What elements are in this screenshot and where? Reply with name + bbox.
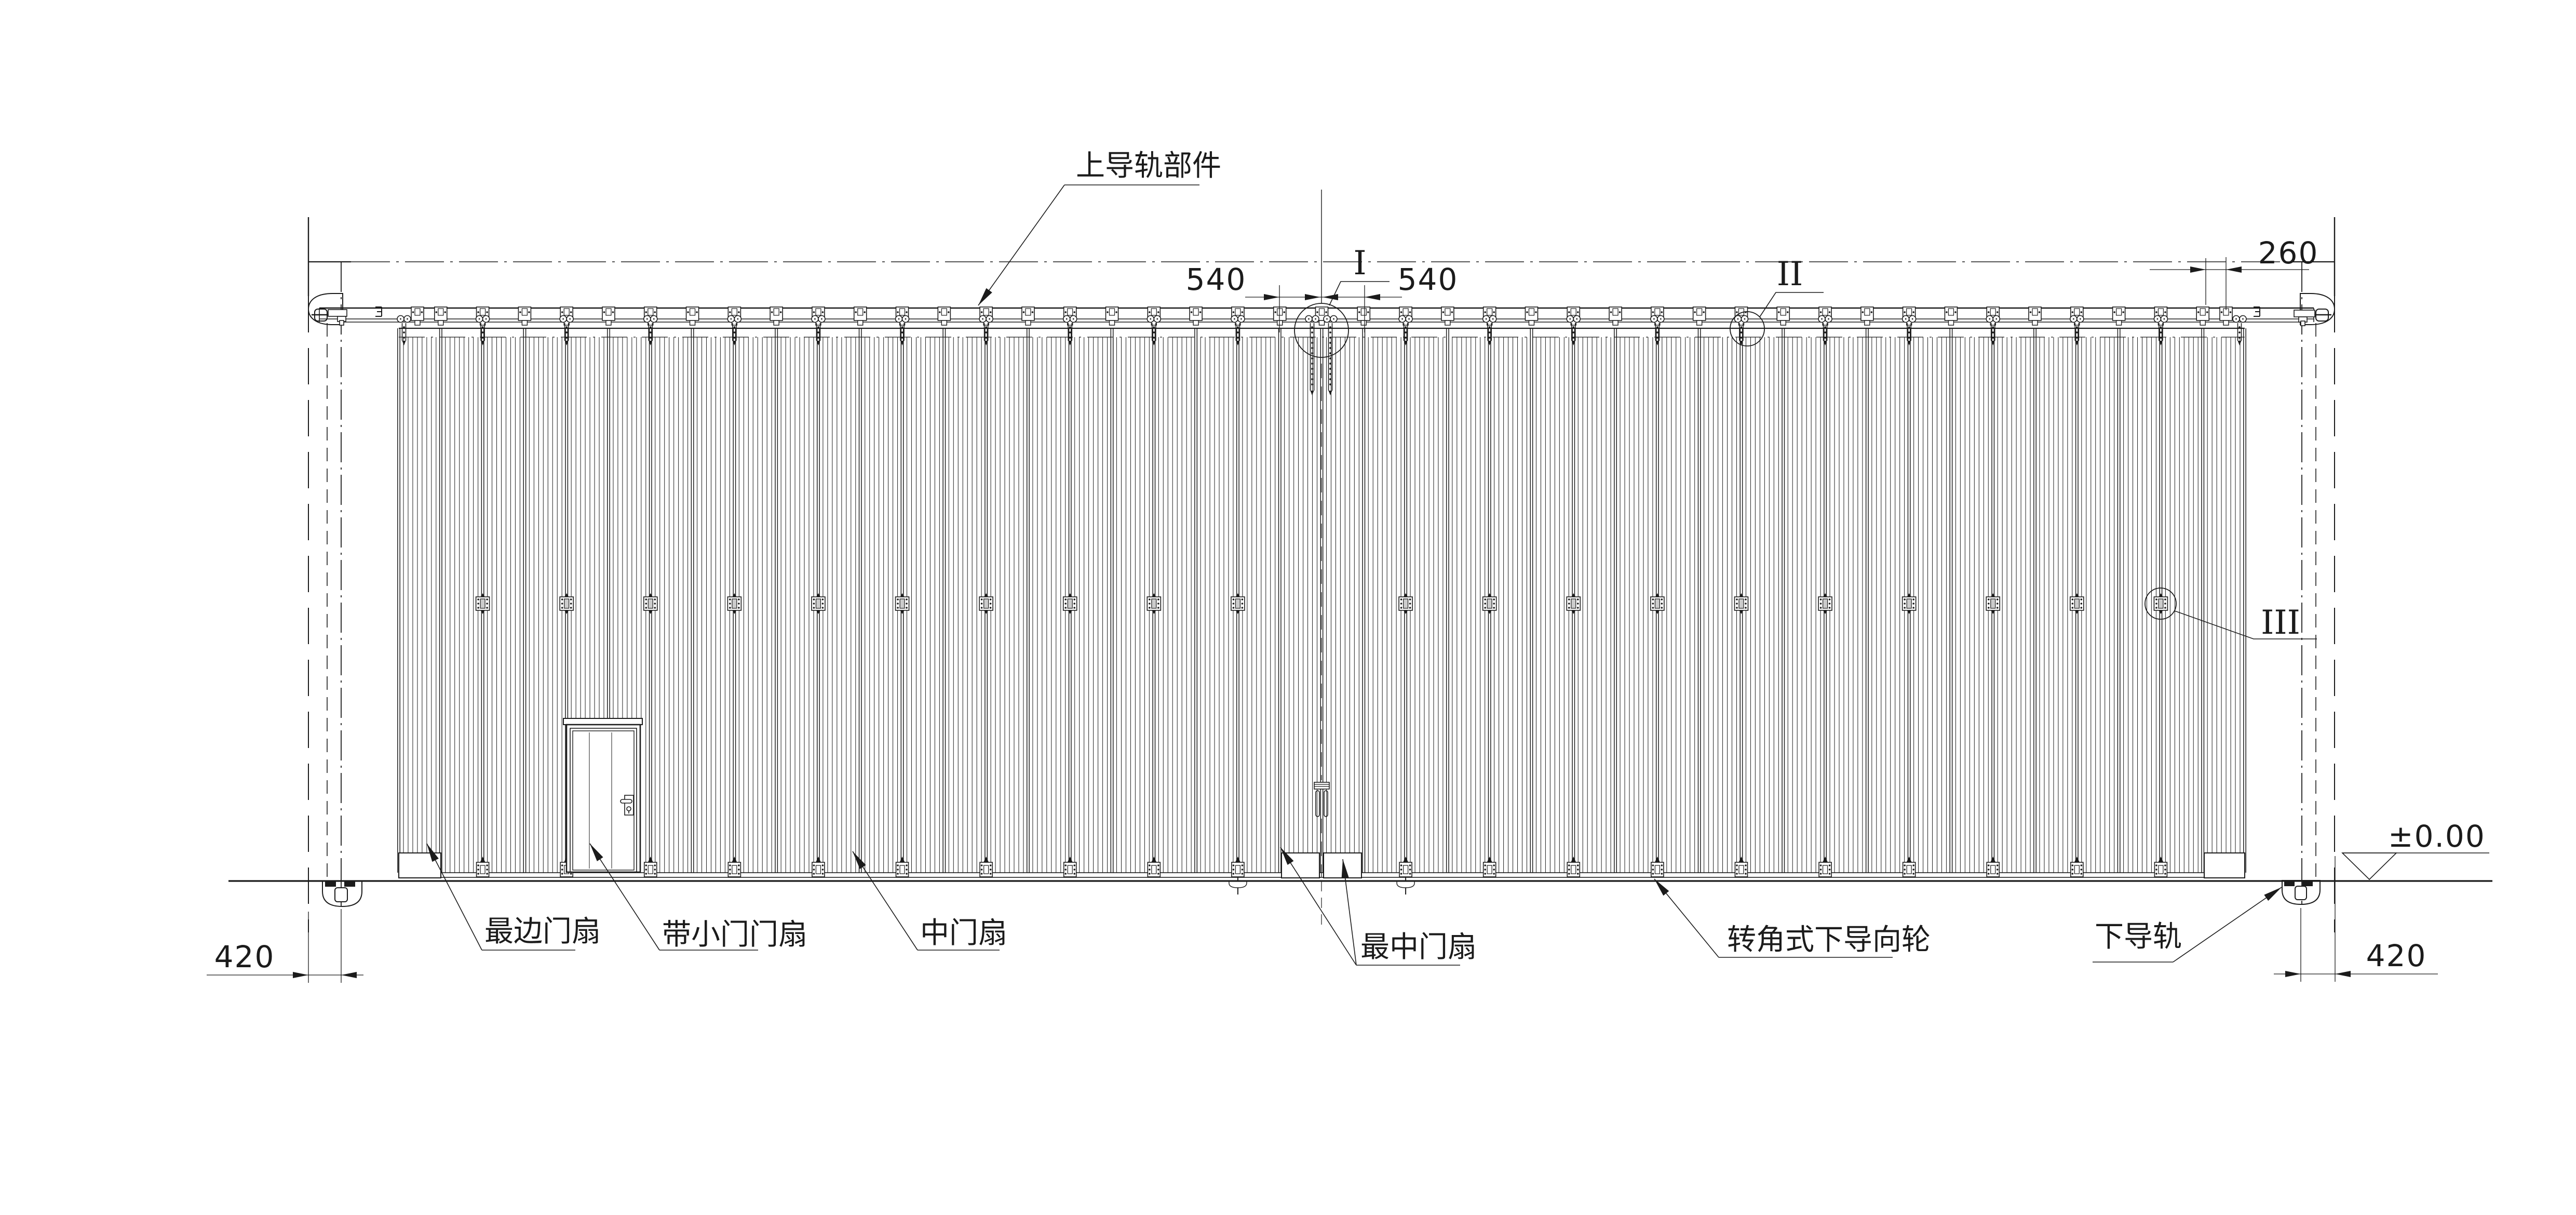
mid-hinge	[2074, 599, 2079, 608]
leader-arrowhead-icon	[1652, 877, 1669, 896]
bolt-dot	[1904, 607, 1906, 609]
bolt-dot	[1988, 598, 1990, 600]
bolt-dot	[1997, 607, 1999, 609]
bolt-dot	[897, 864, 899, 866]
track-bracket	[1357, 307, 1370, 321]
bolt-dot	[1493, 311, 1495, 313]
bolt-dot	[1745, 864, 1747, 866]
bolt-dot	[1311, 342, 1313, 344]
bolt-dot	[1493, 607, 1495, 609]
track-bracket-tab	[1865, 321, 1870, 325]
bolt-dot	[696, 311, 698, 313]
label-middle-leaf: 中门扇	[920, 916, 1007, 950]
bolt-dot	[1568, 598, 1570, 600]
bolt-dot	[1064, 607, 1067, 609]
strap-tip	[1311, 391, 1314, 395]
bolt-dot	[813, 607, 815, 609]
bolt-dot	[1400, 869, 1402, 871]
bolt-dot	[2073, 318, 2074, 320]
bolt-dot	[981, 598, 983, 600]
bolt-dot	[2164, 873, 2166, 875]
bolt-dot	[407, 318, 408, 320]
bolt-dot	[990, 607, 992, 609]
bolt-dot	[482, 326, 484, 328]
guide-tip	[1655, 857, 1660, 862]
bolt-dot	[646, 318, 648, 320]
bolt-dot	[990, 311, 992, 313]
bolt-dot	[738, 311, 740, 313]
bolt-dot	[939, 311, 941, 313]
label-wicket-leaf: 带小门门扇	[662, 918, 807, 952]
bolt-dot	[486, 598, 488, 600]
bolt-dot	[1661, 864, 1663, 866]
bolt-dot	[985, 331, 987, 333]
guide-tip	[1907, 857, 1912, 862]
bolt-dot	[1493, 869, 1495, 871]
bolt-dot	[1157, 873, 1159, 875]
bolt-dot	[1568, 603, 1570, 605]
track-bracket	[1693, 307, 1706, 321]
bolt-dot	[2072, 598, 2074, 600]
bolt-dot	[1199, 311, 1202, 313]
bolt-dot	[1905, 318, 1907, 320]
bolt-dot	[1400, 607, 1402, 609]
mid-hinge	[1152, 599, 1156, 608]
bolt-dot	[1661, 873, 1663, 875]
bolt-dot	[650, 331, 652, 333]
bolt-dot	[1409, 869, 1411, 871]
bolt-dot	[1577, 311, 1579, 313]
track-bracket-tab	[690, 321, 695, 325]
bolt-dot	[1149, 311, 1151, 313]
bolt-dot	[729, 869, 731, 871]
bolt-dot	[990, 873, 992, 875]
mid-hinge	[984, 599, 989, 608]
label-top-rail: 上导轨部件	[1076, 149, 1221, 183]
bolt-dot	[897, 598, 899, 600]
track-bracket-tab	[2032, 321, 2038, 325]
bolt-dot	[1329, 342, 1331, 344]
bolt-dot	[1409, 864, 1411, 866]
bolt-dot	[1073, 864, 1075, 866]
bolt-dot	[645, 873, 647, 875]
track-bracket-tab	[1277, 321, 1283, 325]
bolt-dot	[2076, 331, 2078, 333]
bolt-dot	[1484, 603, 1486, 605]
bolt-dot	[901, 331, 903, 333]
bolt-dot	[421, 311, 423, 313]
bolt-dot	[897, 607, 899, 609]
bolt-dot	[1912, 607, 1914, 609]
bolt-dot	[570, 873, 572, 875]
bolt-dot	[1572, 331, 1574, 333]
bolt-dot	[1736, 869, 1738, 871]
mid-hinge	[648, 599, 653, 608]
bolt-dot	[486, 311, 488, 313]
bolt-dot	[1409, 603, 1411, 605]
mid-hinge	[1571, 599, 1576, 608]
bolt-dot	[1653, 318, 1655, 320]
bolt-dot	[2238, 331, 2241, 333]
bolt-dot	[645, 607, 647, 609]
bolt-dot	[1409, 607, 1411, 609]
bolt-dot	[477, 311, 479, 313]
track-bracket	[1861, 307, 1873, 321]
bolt-dot	[738, 607, 740, 609]
bolt-dot	[1329, 383, 1331, 385]
bolt-dot	[1451, 311, 1453, 313]
track-bracket-tab	[1445, 321, 1450, 325]
bolt-dot	[1149, 598, 1151, 600]
bolt-dot	[1820, 873, 1822, 875]
bolt-dot	[729, 873, 731, 875]
label-center-leaf: 最中门扇	[1360, 930, 1477, 964]
track-bracket-tab	[1026, 321, 1031, 325]
bolt-dot	[1997, 864, 1999, 866]
bolt-dot	[1989, 318, 1990, 320]
bolt-dot	[603, 311, 605, 313]
bolt-dot	[1492, 318, 1494, 320]
bolt-dot	[822, 607, 824, 609]
guide-tip	[1403, 857, 1408, 862]
bolt-dot	[654, 607, 656, 609]
bolt-dot	[1997, 598, 1999, 600]
bolt-dot	[906, 864, 908, 866]
bolt-dot	[1149, 869, 1151, 871]
bolt-dot	[1237, 326, 1239, 328]
guide-tip	[1151, 857, 1156, 862]
bolt-dot	[1329, 326, 1331, 328]
bolt-dot	[1069, 331, 1071, 333]
bolt-dot	[981, 603, 983, 605]
bolt-dot	[1577, 607, 1579, 609]
track-bracket-tab	[1613, 321, 1618, 325]
bolt-dot	[1824, 326, 1826, 328]
bolt-dot	[1486, 318, 1487, 320]
bolt-dot	[570, 311, 572, 313]
mid-hinge	[900, 599, 905, 608]
bolt-dot	[1577, 869, 1579, 871]
bolt-dot	[897, 873, 899, 875]
bolt-dot	[650, 326, 652, 328]
track-bracket-tab	[415, 321, 420, 325]
bolt-dot	[1237, 331, 1239, 333]
bolt-dot	[570, 603, 572, 605]
bolt-dot	[1242, 873, 1244, 875]
bolt-dot	[1787, 311, 1789, 313]
section-mark-I: I	[1353, 244, 1366, 283]
bolt-dot	[561, 864, 563, 866]
bolt-dot	[1073, 873, 1075, 875]
bolt-dot	[2155, 873, 2157, 875]
bolt-dot	[1572, 337, 1574, 339]
bolt-dot	[1326, 318, 1328, 320]
bolt-dot	[737, 318, 738, 320]
track-bracket	[602, 307, 615, 321]
bolt-dot	[561, 869, 563, 871]
track-bracket	[1609, 307, 1622, 321]
bolt-dot	[2039, 311, 2041, 313]
bolt-dot	[1400, 603, 1402, 605]
bolt-dot	[2164, 311, 2166, 313]
bolt-dot	[1741, 326, 1743, 328]
bolt-dot	[1149, 607, 1151, 609]
track-bracket-tab	[1948, 321, 1953, 325]
bolt-dot	[2164, 864, 2166, 866]
dim-260: 260	[2258, 235, 2319, 271]
bolt-dot	[2072, 311, 2074, 313]
bolt-dot	[1442, 311, 1445, 313]
track-bracket	[1525, 307, 1537, 321]
track-bracket-tab	[606, 321, 611, 325]
track-bracket-tab	[1193, 321, 1198, 325]
bolt-dot	[486, 873, 488, 875]
bolt-dot	[435, 311, 437, 313]
bolt-dot	[901, 326, 903, 328]
bolt-dot	[813, 598, 815, 600]
bolt-dot	[1568, 869, 1570, 871]
bolt-dot	[814, 318, 816, 320]
label-edge-leaf: 最边门扇	[484, 915, 601, 949]
bolt-dot	[989, 318, 990, 320]
guide-tip	[983, 857, 989, 862]
bolt-dot	[905, 318, 907, 320]
bolt-dot	[528, 311, 530, 313]
bolt-dot	[1736, 311, 1738, 313]
bolt-dot	[1568, 873, 1570, 875]
center-lock-handle	[1314, 782, 1329, 817]
bolt-dot	[906, 598, 908, 600]
bolt-dot	[654, 603, 656, 605]
bolt-dot	[1912, 598, 1914, 600]
bolt-dot	[477, 869, 479, 871]
bolt-dot	[1329, 331, 1331, 333]
detail-marks	[1294, 282, 2317, 639]
track-bracket-tab	[1529, 321, 1534, 325]
bolt-dot	[1946, 311, 1948, 313]
bolt-dot	[1233, 873, 1235, 875]
mid-hinge	[816, 599, 820, 608]
bolt-dot	[1233, 869, 1235, 871]
bolt-dot	[1311, 373, 1313, 375]
bolt-dot	[1405, 331, 1407, 333]
arrowhead-icon	[2285, 971, 2301, 977]
bolt-dot	[1526, 311, 1528, 313]
guide-tip	[1235, 857, 1240, 862]
bolt-dot	[1073, 598, 1075, 600]
bolt-dot	[1619, 311, 1621, 313]
guide-tip	[732, 857, 737, 862]
bolt-dot	[2113, 311, 2115, 313]
bolt-dot	[1073, 607, 1075, 609]
bolt-dot	[1661, 869, 1663, 871]
bolt-dot	[733, 331, 735, 333]
bolt-dot	[733, 326, 735, 328]
bolt-dot	[654, 311, 656, 313]
bolt-dot	[1157, 864, 1159, 866]
bolt-dot	[813, 869, 815, 871]
bolt-dot	[1745, 869, 1747, 871]
bolt-dot	[1572, 326, 1574, 328]
bolt-dot	[1656, 337, 1658, 339]
leader-arrowhead-icon	[849, 849, 866, 869]
bolt-dot	[2076, 326, 2078, 328]
mid-hinge	[1739, 599, 1744, 608]
bolt-dot	[1992, 331, 1994, 333]
bolt-dot	[1329, 373, 1331, 375]
bolt-dot	[1066, 318, 1068, 320]
bolt-dot	[906, 873, 908, 875]
bolt-dot	[1274, 311, 1276, 313]
bolt-dot	[1703, 311, 1705, 313]
bolt-dot	[2080, 318, 2081, 320]
bolt-dot	[654, 598, 656, 600]
bolt-dot	[1489, 326, 1491, 328]
bolt-dot	[822, 311, 824, 313]
bolt-dot	[1153, 331, 1155, 333]
bolt-dot	[561, 598, 563, 600]
bolt-dot	[561, 873, 563, 875]
guide-tip	[1738, 857, 1744, 862]
bolt-dot	[1997, 603, 1999, 605]
bolt-dot	[1988, 607, 1990, 609]
label-corner-guide-wheel: 转角式下导向轮	[1727, 923, 1931, 957]
bolt-dot	[1904, 598, 1906, 600]
bolt-dot	[1308, 318, 1310, 320]
bolt-dot	[981, 607, 983, 609]
bolt-dot	[817, 326, 819, 328]
bolt-dot	[1400, 598, 1402, 600]
bolt-dot	[1242, 869, 1244, 871]
bolt-dot	[1820, 869, 1822, 871]
bolt-dot	[1820, 603, 1822, 605]
bolt-dot	[2164, 607, 2166, 609]
bolt-dot	[897, 603, 899, 605]
bolt-dot	[1829, 869, 1831, 871]
bolt-dot	[1736, 598, 1738, 600]
bolt-dot	[1484, 598, 1486, 600]
mid-hinge	[1655, 599, 1660, 608]
bolt-dot	[412, 311, 414, 313]
track-bracket-tab	[1697, 321, 1702, 325]
bolt-dot	[1652, 873, 1654, 875]
bolt-dot	[813, 311, 815, 313]
bolt-dot	[1569, 318, 1571, 320]
bolt-dot	[1073, 869, 1075, 871]
bolt-dot	[2030, 311, 2032, 313]
bolt-dot	[822, 869, 824, 871]
bolt-dot	[1988, 311, 1990, 313]
track-bracket	[2113, 307, 2125, 321]
bolt-dot	[1737, 318, 1739, 320]
track-bracket	[1190, 307, 1202, 321]
bolt-dot	[1149, 603, 1151, 605]
guide-tip	[1990, 857, 1995, 862]
level-triangle-icon	[2342, 853, 2396, 879]
bolt-dot	[1242, 864, 1244, 866]
bolt-dot	[1820, 598, 1822, 600]
arrowhead-icon	[2335, 971, 2351, 977]
bolt-dot	[1610, 311, 1612, 313]
strap-tip	[402, 341, 406, 345]
bolt-dot	[1652, 869, 1654, 871]
bolt-dot	[2157, 318, 2159, 320]
bolt-dot	[562, 318, 564, 320]
bolt-dot	[477, 864, 479, 866]
track-bracket	[854, 307, 867, 321]
bolt-dot	[981, 869, 983, 871]
bolt-dot	[1073, 311, 1075, 313]
bolt-dot	[948, 311, 950, 313]
bolt-dot	[1237, 337, 1239, 339]
bolt-dot	[1904, 864, 1906, 866]
folding-door-elevation-drawing: I II III 540 540 260 420 420 ±0.00	[0, 0, 2576, 1215]
bolt-dot	[654, 873, 656, 875]
bolt-dot	[1576, 318, 1577, 320]
bolt-dot	[1329, 347, 1331, 349]
bolt-dot	[1484, 873, 1486, 875]
bolt-dot	[1157, 607, 1159, 609]
bolt-dot	[2164, 869, 2166, 871]
bolt-dot	[864, 311, 866, 313]
guide-tip	[1823, 857, 1828, 862]
mid-hinge	[732, 599, 737, 608]
bolt-dot	[821, 318, 822, 320]
bolt-dot	[477, 873, 479, 875]
bolt-dot	[1652, 598, 1654, 600]
guide-tip	[1068, 857, 1073, 862]
bolt-dot	[2221, 311, 2223, 313]
bolt-dot	[1157, 311, 1159, 313]
bolt-dot	[1829, 607, 1831, 609]
bolt-dot	[897, 311, 899, 313]
track-bracket	[1777, 307, 1789, 321]
bolt-dot	[1997, 873, 1999, 875]
mid-hinge	[480, 599, 485, 608]
bolt-dot	[1568, 607, 1570, 609]
bolt-dot	[1656, 331, 1658, 333]
bolt-dot	[645, 603, 647, 605]
guide-tip	[1487, 857, 1492, 862]
bolt-dot	[1912, 869, 1914, 871]
bolt-dot	[2242, 318, 2244, 320]
bolt-dot	[1329, 363, 1331, 365]
bolt-dot	[1409, 311, 1411, 313]
bolt-dot	[898, 318, 900, 320]
bolt-dot	[1694, 311, 1696, 313]
bolt-dot	[1568, 864, 1570, 866]
bolt-dot	[403, 331, 405, 333]
bolt-dot	[1652, 864, 1654, 866]
bolt-dot	[485, 318, 487, 320]
bolt-dot	[654, 869, 656, 871]
bolt-dot	[1824, 331, 1826, 333]
track-bracket	[1274, 307, 1286, 321]
bolt-dot	[981, 864, 983, 866]
bolt-dot	[1233, 607, 1235, 609]
bolt-dot	[1912, 311, 1914, 313]
bolt-dot	[1912, 603, 1914, 605]
bolt-dot	[1191, 311, 1193, 313]
floor-cup	[1397, 881, 1414, 888]
track-bracket	[2029, 307, 2041, 321]
section-mark-II: II	[1777, 255, 1803, 293]
bolt-dot	[2164, 598, 2166, 600]
dim-420-left: 420	[214, 939, 275, 974]
bolt-dot	[1234, 318, 1235, 320]
bolt-dot	[444, 311, 446, 313]
bolt-dot	[2081, 864, 2083, 866]
